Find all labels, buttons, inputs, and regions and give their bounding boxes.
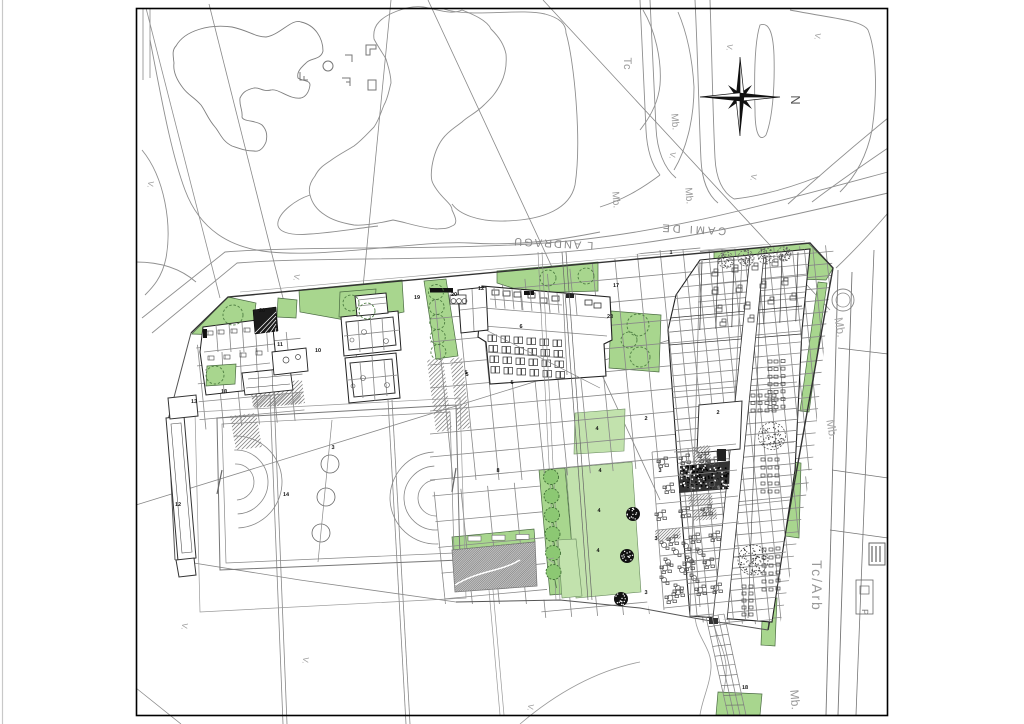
svg-text:20: 20 bbox=[259, 308, 265, 314]
svg-text:18: 18 bbox=[742, 685, 748, 691]
svg-text:20: 20 bbox=[451, 292, 457, 298]
svg-text:3: 3 bbox=[654, 536, 657, 542]
svg-text:6: 6 bbox=[519, 324, 522, 330]
svg-text:P: P bbox=[860, 609, 870, 615]
svg-text:13: 13 bbox=[191, 399, 197, 405]
svg-text:19: 19 bbox=[414, 295, 420, 301]
svg-text:14: 14 bbox=[283, 492, 290, 498]
svg-text:Tc/Arb: Tc/Arb bbox=[809, 560, 825, 612]
svg-text:18: 18 bbox=[221, 389, 227, 395]
svg-text:10: 10 bbox=[315, 348, 321, 354]
svg-text:3: 3 bbox=[644, 590, 647, 596]
svg-text:12: 12 bbox=[175, 502, 181, 508]
svg-text:8: 8 bbox=[496, 468, 499, 474]
svg-text:N: N bbox=[788, 95, 803, 104]
svg-text:Mb.: Mb. bbox=[609, 191, 621, 209]
svg-text:Tc: Tc bbox=[621, 58, 633, 71]
svg-text:Mb.: Mb. bbox=[682, 187, 694, 205]
svg-text:Mb.: Mb. bbox=[668, 113, 680, 131]
svg-text:2: 2 bbox=[644, 416, 647, 422]
svg-text:1: 1 bbox=[669, 250, 672, 256]
svg-text:5: 5 bbox=[464, 370, 467, 376]
svg-text:2: 2 bbox=[716, 410, 719, 416]
svg-text:11: 11 bbox=[277, 342, 283, 348]
svg-text:5: 5 bbox=[510, 380, 513, 386]
svg-text:3: 3 bbox=[331, 445, 334, 451]
svg-text:23: 23 bbox=[607, 314, 613, 320]
svg-text:3: 3 bbox=[658, 468, 661, 474]
svg-text:12: 12 bbox=[478, 286, 484, 292]
svg-text:17: 17 bbox=[613, 283, 619, 289]
svg-text:Mb.: Mb. bbox=[787, 689, 803, 710]
